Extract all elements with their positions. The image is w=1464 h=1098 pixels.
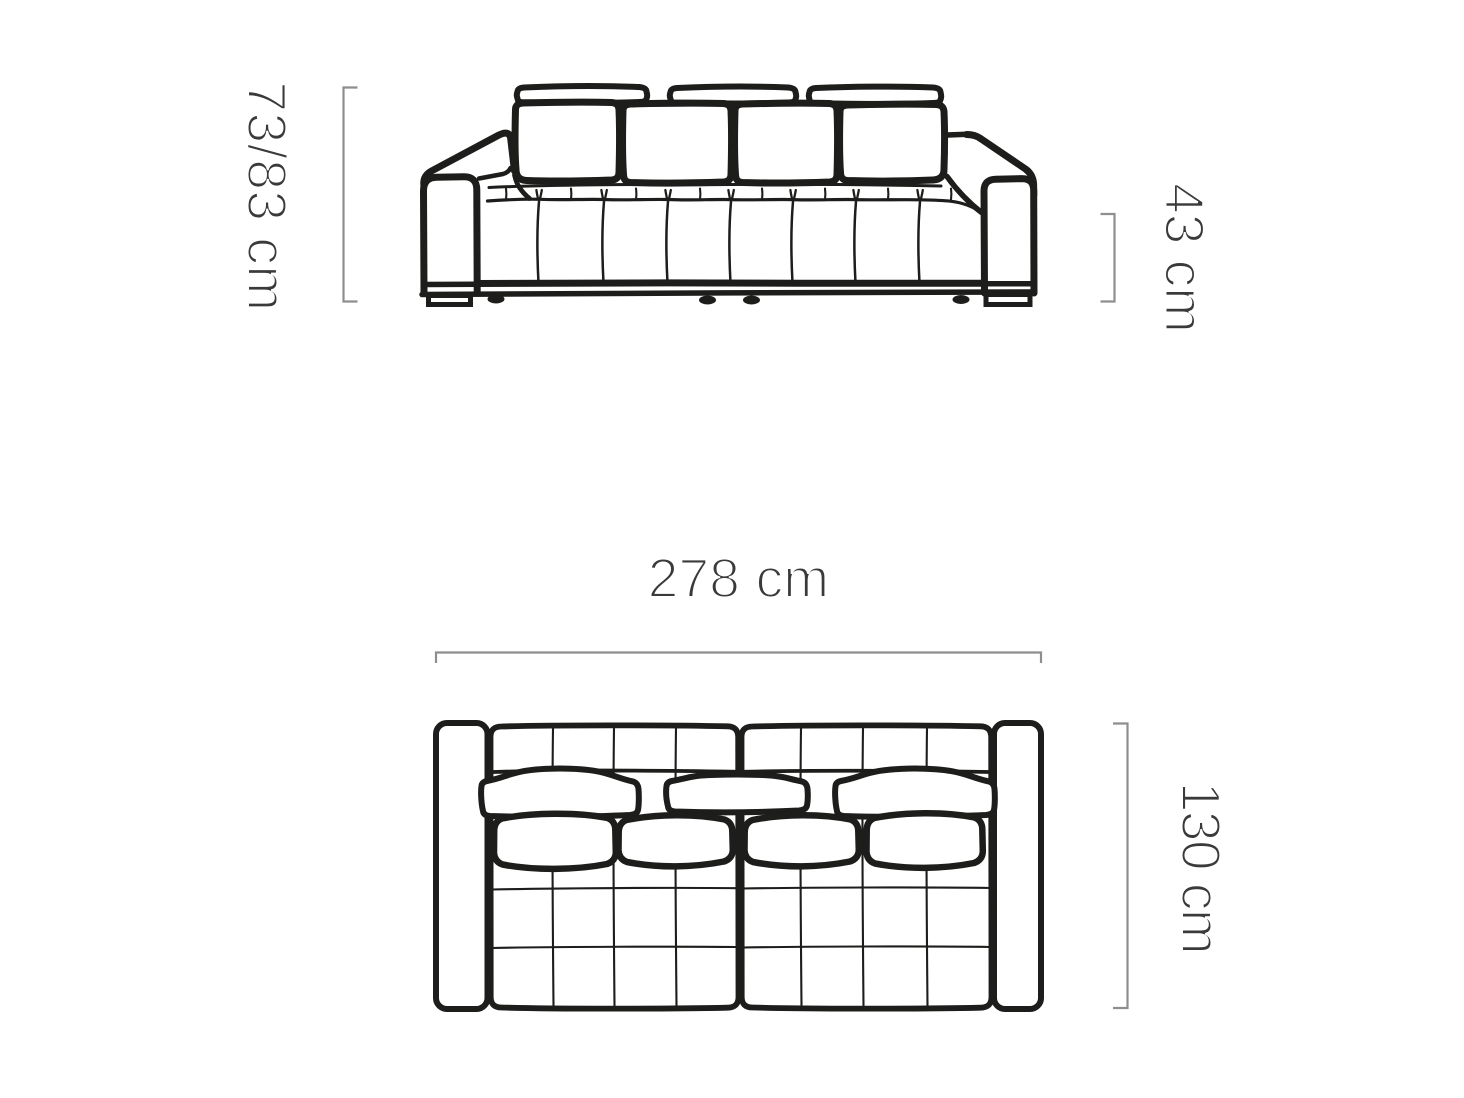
svg-text:73/83 cm: 73/83 cm (236, 81, 298, 311)
svg-text:278 cm: 278 cm (648, 547, 830, 609)
svg-text:130 cm: 130 cm (1170, 782, 1232, 953)
svg-text:43 cm: 43 cm (1154, 183, 1216, 333)
